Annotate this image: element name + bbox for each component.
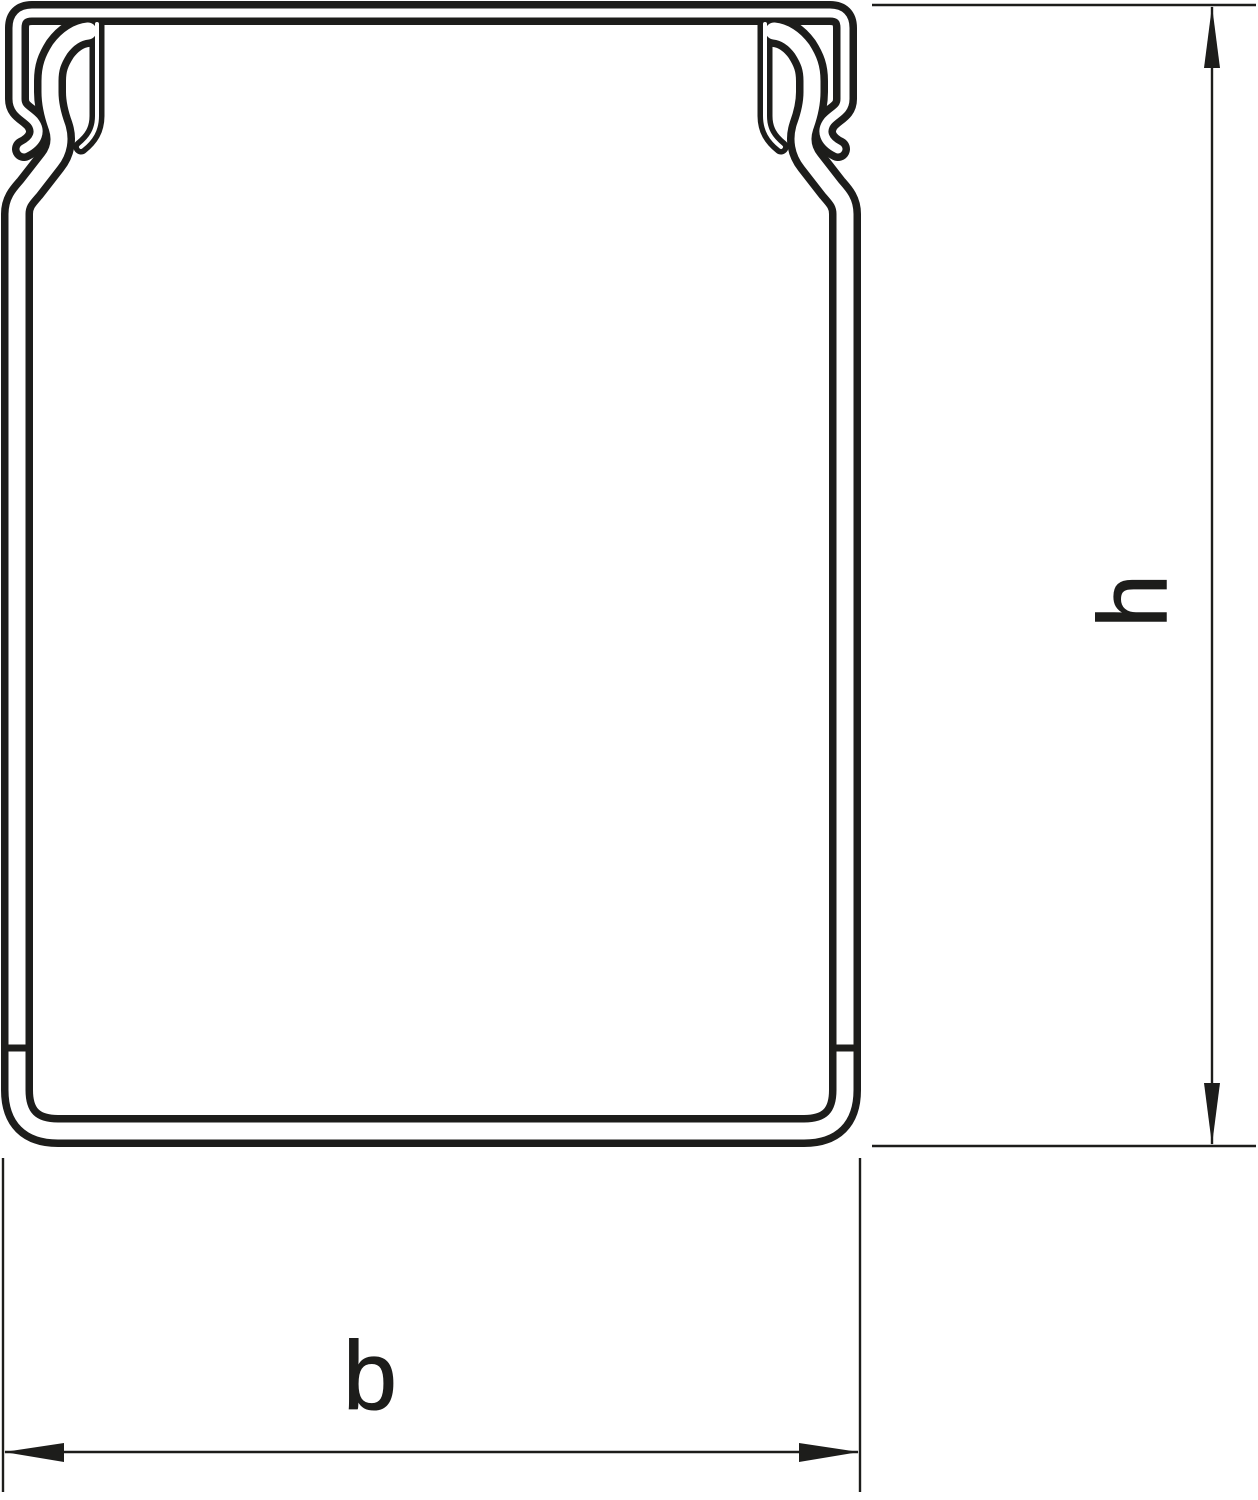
cover-profile-channel xyxy=(17,13,845,149)
height-dimension-label: h xyxy=(1078,574,1187,628)
arrow-right-icon xyxy=(799,1443,859,1462)
cover-profile-outline xyxy=(17,13,845,149)
height-dimension: h xyxy=(872,5,1256,1146)
arrow-down-icon xyxy=(1204,1083,1220,1145)
arrow-up-icon xyxy=(1204,6,1220,68)
duct-body-outline xyxy=(17,31,845,1131)
drawing-canvas: h b xyxy=(0,0,1258,1500)
trunking-profile xyxy=(1,13,861,1131)
arrow-left-icon xyxy=(4,1443,64,1462)
trunking-cross-section-drawing: h b xyxy=(0,0,1258,1500)
duct-body-channel xyxy=(17,31,845,1131)
width-dimension: b xyxy=(3,1158,860,1492)
width-dimension-label: b xyxy=(343,1321,397,1430)
